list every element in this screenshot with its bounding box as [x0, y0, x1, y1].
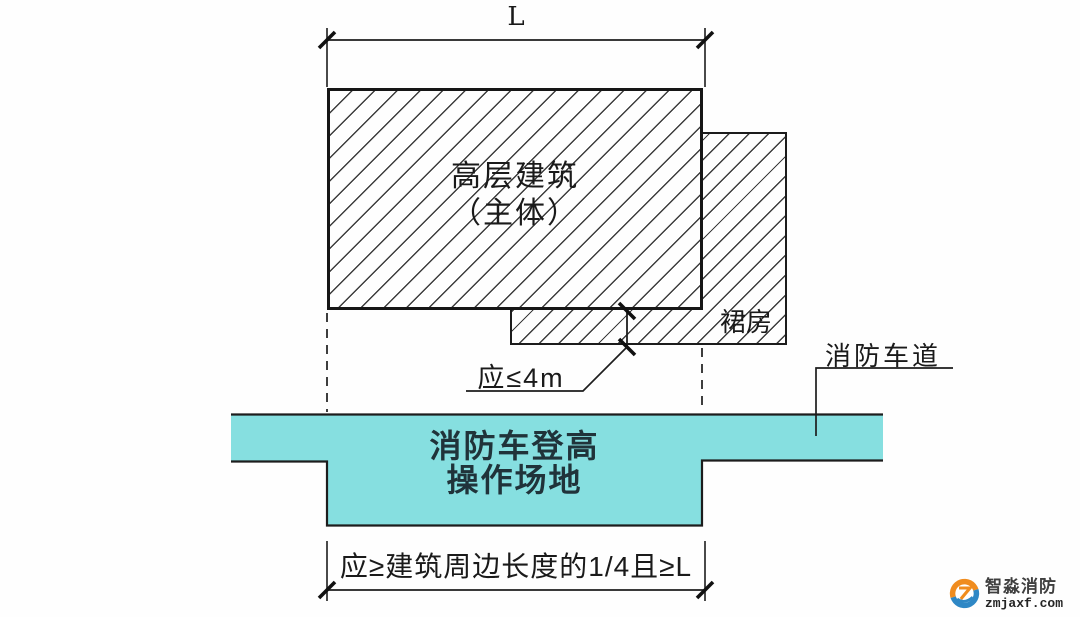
watermark: 智淼消防 zmjaxf.com [948, 577, 1063, 610]
operation-site-label-line1: 消防车登高 [327, 429, 702, 463]
watermark-domain: zmjaxf.com [985, 597, 1063, 610]
watermark-logo-icon [948, 577, 981, 610]
operation-site-label-line2: 操作场地 [327, 463, 702, 497]
watermark-brand: 智淼消防 [985, 578, 1063, 595]
main-building-label-line1: 高层建筑 [327, 158, 703, 195]
main-building-label-line2: （主体） [327, 195, 703, 232]
perimeter-dimension-label: 应≥建筑周边长度的1/4且≥L [300, 545, 732, 585]
operation-site-label: 消防车登高 操作场地 [327, 429, 702, 497]
fire-lane-leader [816, 368, 953, 436]
podium-label: 裙房 [703, 302, 789, 339]
main-building-label: 高层建筑 （主体） [327, 158, 703, 232]
diagram-canvas: L 高层建筑 （主体） 裙房 应≤4m 消防车道 消防车登高 操作场地 应≥建筑… [0, 0, 1080, 617]
dimension-tick [697, 32, 713, 48]
length-dimension-label: L [490, 2, 542, 32]
fire-lane-label: 消防车道 [810, 336, 956, 373]
dimension-tick [319, 32, 335, 48]
gap-dimension-label: 应≤4m [456, 356, 586, 395]
